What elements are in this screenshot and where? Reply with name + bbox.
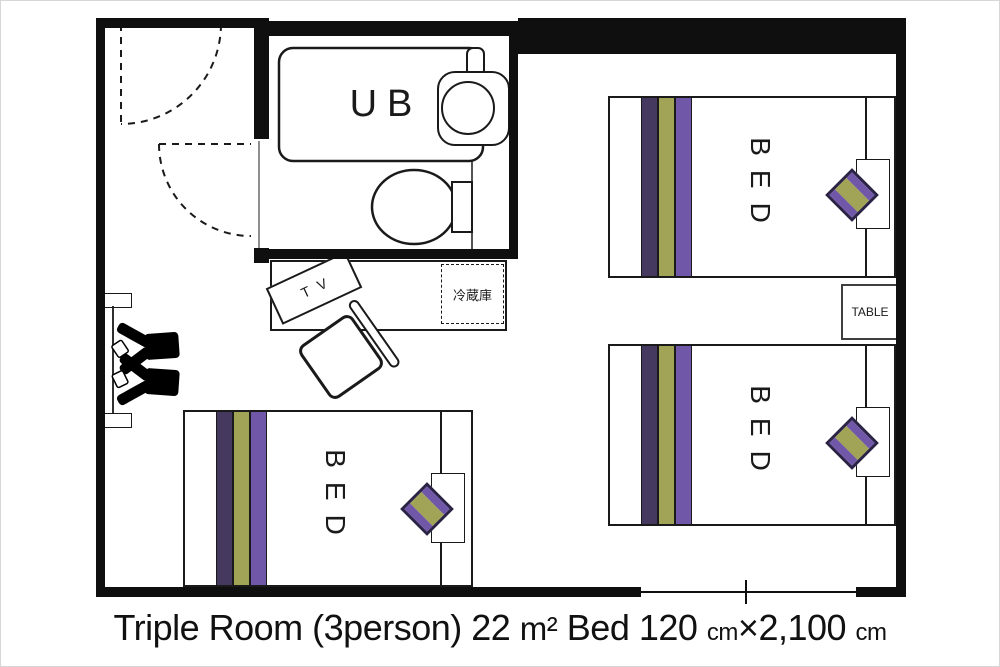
caption-text: Triple Room (3person) 22 [113, 607, 519, 648]
wall-bottom-right [856, 587, 906, 597]
wall-bath-bottom [263, 249, 509, 259]
stool-icon [293, 299, 400, 406]
wall-bath-right [509, 36, 518, 259]
wall-left [96, 18, 105, 597]
wall-top-left [96, 18, 269, 28]
caption-unit-cm: cm [856, 619, 887, 646]
toilet-tank-icon [452, 182, 472, 232]
caption-text: 2,100 [758, 607, 855, 648]
plan-linework [1, 1, 1000, 667]
wall-right [896, 18, 906, 597]
caption: Triple Room (3person) 22 m² Bed 120 cm×2… [1, 607, 999, 649]
entry-door-swing-icon [121, 24, 221, 124]
caption-unit-m2: m² [520, 610, 557, 647]
wall-bath-top [254, 21, 518, 36]
wall-top-right [518, 18, 906, 54]
caption-unit-cm: cm [707, 619, 738, 646]
caption-times: × [738, 607, 759, 648]
toilet-bowl-icon [372, 170, 456, 244]
caption-text: Bed 120 [557, 607, 707, 648]
wall-bottom-left [96, 587, 641, 597]
window-line [641, 591, 856, 593]
bath-door-swing-icon [159, 144, 251, 236]
window-tick [745, 580, 747, 604]
wall-bath-left [254, 36, 269, 139]
floor-plan: BED BED BED TV 冷蔵庫 TABLE [0, 0, 1000, 667]
unit-bath-label: UB [331, 85, 431, 123]
washbasin-icon [442, 82, 494, 134]
